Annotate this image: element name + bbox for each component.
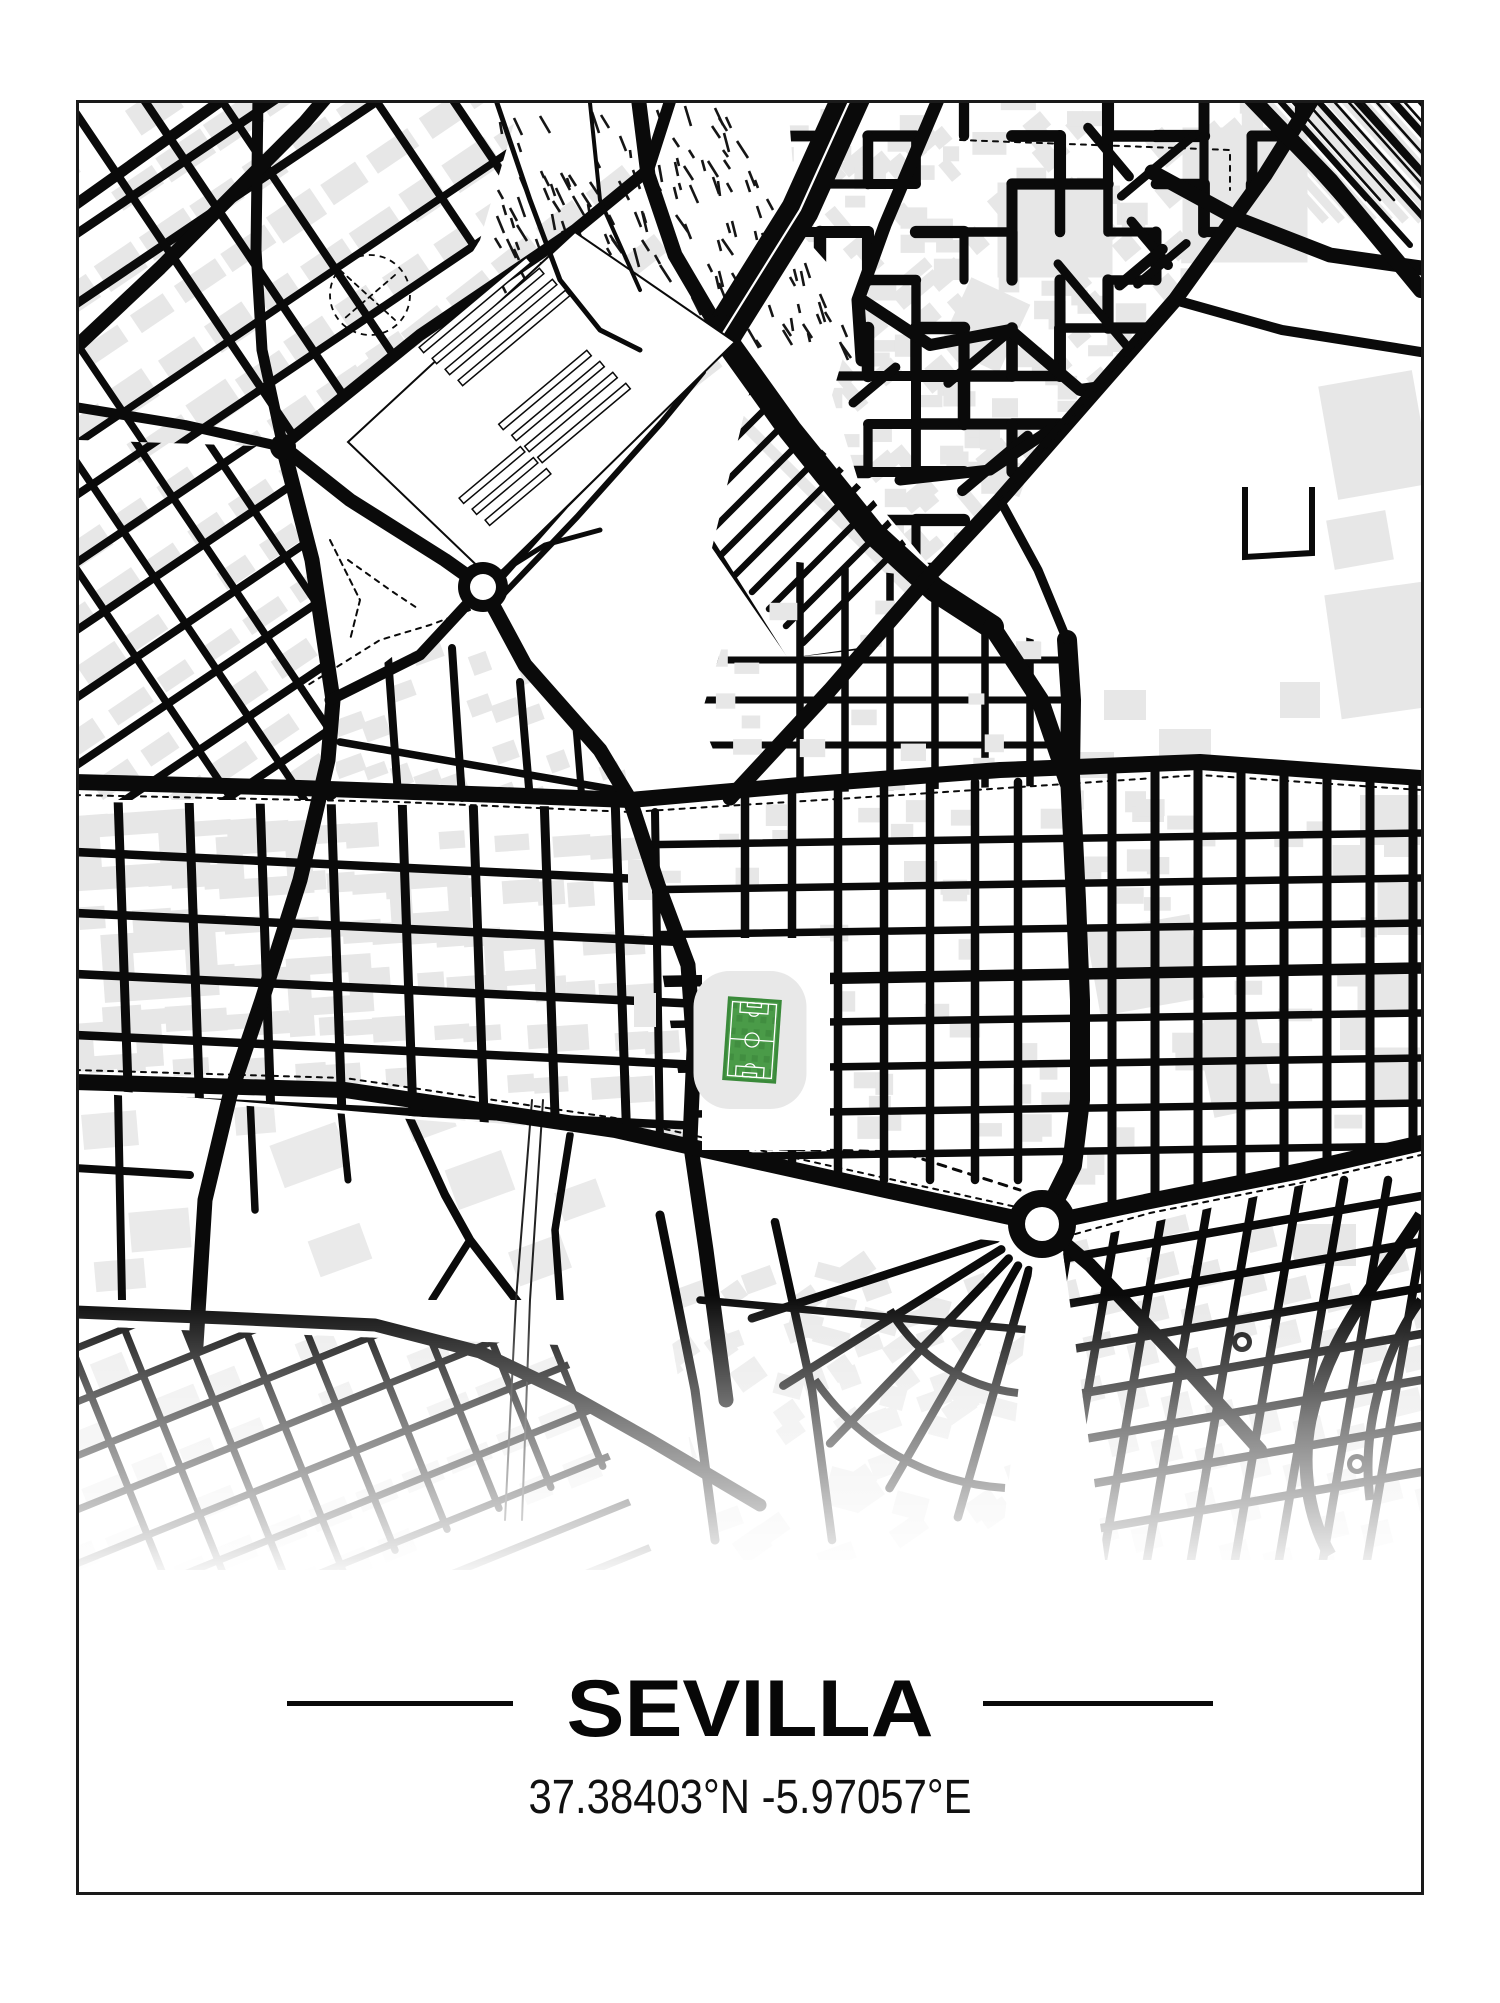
svg-text:37.38403°N -5.97057°E: 37.38403°N -5.97057°E [529,1771,972,1824]
svg-text:SEVILLA: SEVILLA [567,1664,934,1754]
